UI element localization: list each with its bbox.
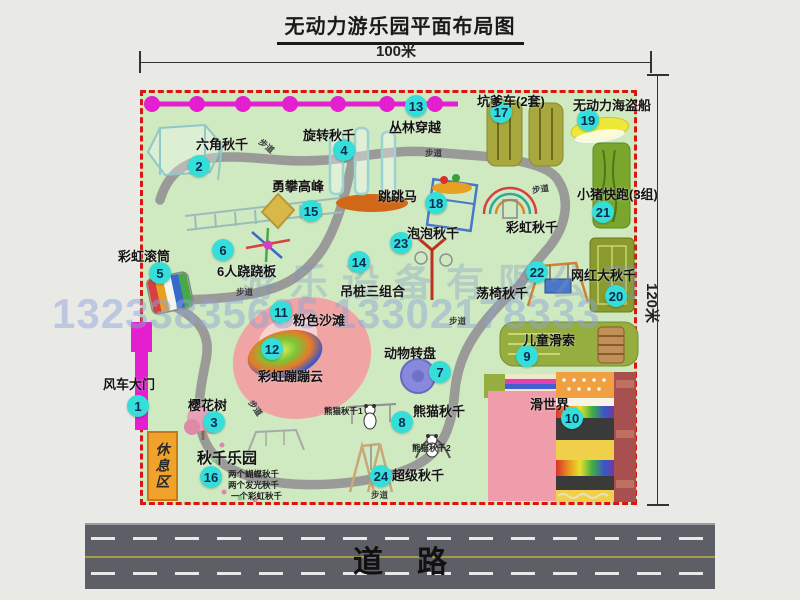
- attraction-label: 滑世界: [530, 394, 569, 413]
- attraction-number-badge: 15: [300, 200, 322, 222]
- attraction-number-badge: 22: [526, 261, 548, 283]
- attraction-label: 丛林穿越: [389, 117, 441, 136]
- attraction-label: 吊桩三组合: [340, 281, 405, 300]
- attraction-label: 樱花树: [188, 395, 227, 414]
- attraction-number-badge: 21: [592, 201, 614, 223]
- rest-area-label: 休息区: [153, 442, 173, 490]
- attraction-label: 粉色沙滩: [293, 310, 345, 329]
- attraction-number-badge: 16: [200, 466, 222, 488]
- attraction-label: 荡椅秋千: [476, 283, 528, 302]
- page-title: 无动力游乐园平面布局图: [0, 10, 800, 45]
- attraction-label: 动物转盘: [384, 343, 436, 362]
- attraction-number-badge: 11: [270, 301, 292, 323]
- attraction-label: 6人跷跷板: [217, 261, 276, 280]
- attraction-number-badge: 8: [391, 411, 413, 433]
- attraction-label: 勇攀高峰: [272, 176, 324, 195]
- attraction-number-badge: 14: [348, 251, 370, 273]
- attraction-label: 彩虹滚筒: [118, 246, 170, 265]
- footpath-label: 步道: [449, 315, 466, 327]
- attraction-label: 儿童滑索: [523, 330, 575, 349]
- attraction-label: 泡泡秋千: [407, 223, 459, 242]
- attraction-label: 旋转秋千: [303, 125, 355, 144]
- road: 道路: [85, 523, 715, 589]
- rest-area: 休息区: [147, 431, 178, 501]
- attraction-sub-label: 一个彩虹秋千: [231, 490, 282, 502]
- attraction-number-badge: 20: [605, 285, 627, 307]
- attraction-label: 熊猫秋千: [413, 401, 465, 420]
- dimension-tick: [647, 504, 669, 506]
- attraction-number-badge: 1: [127, 395, 149, 417]
- attraction-number-badge: 12: [261, 338, 283, 360]
- attraction-label: 网红大秋千: [571, 265, 636, 284]
- footpath-label: 步道: [236, 286, 253, 298]
- road-label: 道路: [85, 537, 715, 581]
- attraction-number-badge: 3: [203, 411, 225, 433]
- dimension-tick: [650, 51, 652, 73]
- attraction-number-badge: 5: [149, 262, 171, 284]
- attraction-label: 风车大门: [103, 374, 155, 393]
- park-layout-map: 无动力游乐园平面布局图 100米 120米: [0, 0, 800, 600]
- dimension-width-line: [140, 62, 652, 63]
- footpath-label: 步道: [371, 489, 388, 501]
- attraction-number-badge: 7: [429, 361, 451, 383]
- attraction-number-badge: 18: [425, 192, 447, 214]
- attraction-sub-label: 熊猫秋千2: [412, 442, 451, 454]
- dimension-tick: [139, 51, 141, 73]
- attraction-label: 小猪快跑(3组): [577, 184, 658, 203]
- attraction-label: 跳跳马: [378, 186, 417, 205]
- dimension-tick: [647, 74, 669, 76]
- attraction-number-badge: 24: [370, 465, 392, 487]
- dimension-height-line: [657, 75, 658, 505]
- attraction-label: 彩虹蹦蹦云: [258, 366, 323, 385]
- attraction-label: 坑爹车(2套): [477, 91, 545, 110]
- footpath-label: 步道: [531, 182, 550, 196]
- attraction-label: 超级秋千: [392, 465, 444, 484]
- attraction-sub-label: 彩虹秋千: [506, 217, 558, 236]
- attraction-number-badge: 2: [188, 155, 210, 177]
- attraction-number-badge: 6: [212, 239, 234, 261]
- attraction-label: 无动力海盗船: [573, 95, 651, 114]
- attraction-label: 秋千乐园: [197, 447, 257, 468]
- footpath-label: 步道: [425, 147, 442, 159]
- attraction-number-badge: 13: [405, 95, 427, 117]
- attraction-label: 六角秋千: [196, 134, 248, 153]
- attraction-sub-label: 熊猫秋千1: [324, 405, 363, 417]
- dimension-height-label: 120米: [642, 283, 663, 323]
